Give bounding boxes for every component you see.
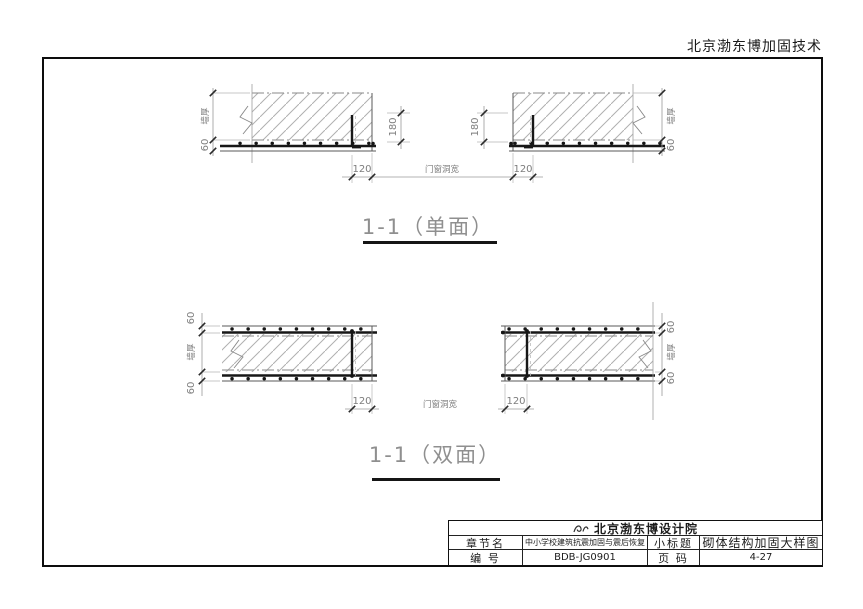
dim-60: 60 bbox=[186, 312, 197, 325]
title-block-row-number: 编 号 BDB-JG0901 页 码 4-27 bbox=[449, 550, 822, 565]
single-right-wall bbox=[509, 84, 665, 163]
institute-logo-icon bbox=[573, 523, 589, 534]
dim-120: 120 bbox=[513, 164, 532, 175]
institute-name: 北京渤东博设计院 bbox=[594, 520, 698, 537]
page-label: 页 码 bbox=[648, 550, 700, 565]
dim-120: 120 bbox=[352, 164, 371, 175]
subtitle-label: 小标题 bbox=[648, 536, 700, 549]
single-figure-title: 1-1（单面） bbox=[362, 215, 494, 239]
dim-120: 120 bbox=[506, 396, 525, 407]
number-label: 编 号 bbox=[449, 550, 523, 565]
double-figure-title: 1-1（双面） bbox=[369, 443, 501, 467]
title-block-row-chapter: 章节名 中小学校建筑抗震加固与震后恢复 小标题 砌体结构加固大样图 bbox=[449, 536, 822, 550]
dim-wall-thickness: 墙厚 bbox=[666, 107, 677, 125]
dim-180: 180 bbox=[388, 117, 399, 136]
single-bottom-dims: 120 门窗洞宽 120 bbox=[342, 153, 543, 183]
dim-60: 60 bbox=[666, 372, 677, 385]
dim-180: 180 bbox=[470, 117, 481, 136]
page-value: 4-27 bbox=[700, 550, 822, 565]
dim-120: 120 bbox=[352, 396, 371, 407]
double-right-dim-chain: 60 墙厚 60 bbox=[655, 313, 677, 396]
section-double: 60 墙厚 60 60 墙厚 60 120 门窗洞宽 bbox=[186, 302, 677, 480]
single-left-wall bbox=[220, 84, 376, 163]
title-block: 北京渤东博设计院 章节名 中小学校建筑抗震加固与震后恢复 小标题 砌体结构加固大… bbox=[448, 520, 823, 566]
dim-opening-width: 门窗洞宽 bbox=[423, 399, 458, 410]
break-symbol bbox=[240, 106, 252, 134]
double-left-wall bbox=[222, 326, 377, 381]
dim-wall-thickness: 墙厚 bbox=[186, 343, 197, 361]
drawing-canvas: 墙厚 60 墙厚 60 180 180 bbox=[0, 0, 863, 609]
chapter-value: 中小学校建筑抗震加固与震后恢复 bbox=[523, 536, 648, 549]
dim-opening-width: 门窗洞宽 bbox=[425, 164, 460, 175]
double-bottom-dims: 120 门窗洞宽 120 bbox=[345, 384, 534, 414]
number-value: BDB-JG0901 bbox=[523, 550, 648, 565]
dim-60: 60 bbox=[200, 139, 211, 152]
section-single: 墙厚 60 墙厚 60 180 180 bbox=[200, 84, 677, 243]
single-left-180-dim: 180 bbox=[387, 106, 410, 149]
title-block-institute-row: 北京渤东博设计院 bbox=[449, 521, 822, 536]
dim-60: 60 bbox=[666, 321, 677, 334]
subtitle-value: 砌体结构加固大样图 bbox=[700, 536, 822, 549]
double-left-dim-chain: 60 墙厚 60 bbox=[186, 312, 220, 396]
single-right-180-dim: 180 bbox=[470, 106, 508, 149]
chapter-label: 章节名 bbox=[449, 536, 523, 549]
dim-wall-thickness: 墙厚 bbox=[666, 343, 677, 361]
dim-wall-thickness: 墙厚 bbox=[200, 107, 211, 125]
dim-60: 60 bbox=[186, 382, 197, 395]
dim-60: 60 bbox=[666, 139, 677, 152]
break-symbol bbox=[633, 106, 645, 134]
